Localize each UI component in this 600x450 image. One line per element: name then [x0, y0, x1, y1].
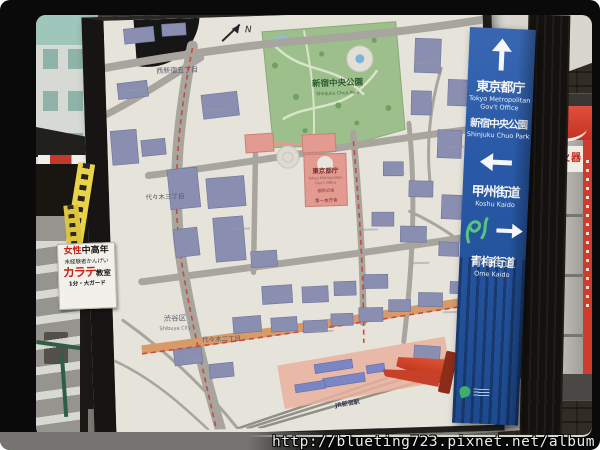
- label-nishi-shinjuku: 西新宿五丁目: [156, 65, 198, 75]
- label-yoyogi2: 代々木二丁目: [202, 334, 241, 344]
- photo-frame: N: [0, 0, 600, 450]
- sign-koshu-en: Koshu Kaido: [462, 199, 528, 210]
- tokyo-leaf-icon: [458, 385, 472, 399]
- street-photo: N: [36, 15, 592, 437]
- label-shibuya-en: Shibuya City: [159, 325, 191, 332]
- arrow-right-icon: [494, 219, 523, 242]
- arrow-up-icon: [486, 38, 518, 73]
- arrow-left-icon: [479, 149, 514, 177]
- poster-line4: 1分・大ガード: [59, 280, 115, 288]
- label-tocho-en2: Gov't Office: [315, 181, 337, 186]
- svg-text:N: N: [245, 25, 252, 35]
- box-red-side-strip: [583, 140, 592, 390]
- sign-tocho-en2: Gov't Office: [466, 102, 532, 113]
- label-tocho: 東京都庁: [312, 166, 339, 176]
- label-yoyogi3: 代々木三丁目: [145, 191, 184, 201]
- karate-poster: 女性中高年 未経験者かんげい カラテ教室 1分・大ガード: [57, 242, 117, 310]
- sign-park-en: Shinjuku Chuo Park: [465, 130, 531, 141]
- watermark-url: http://blueting723.pixnet.net/album: [272, 434, 595, 450]
- poster-line1: 女性中高年: [58, 246, 114, 258]
- poster-line3: カラテ教室: [59, 265, 115, 280]
- tokyo-metro-logo: [459, 386, 489, 398]
- label-park: 新宿中央公園: [312, 77, 363, 90]
- graffiti-sticker: [462, 213, 491, 246]
- graffiti-arrow-row: [460, 213, 527, 250]
- logo-text-marks: [473, 388, 489, 397]
- label-shibuya: 渋谷区: [163, 312, 186, 323]
